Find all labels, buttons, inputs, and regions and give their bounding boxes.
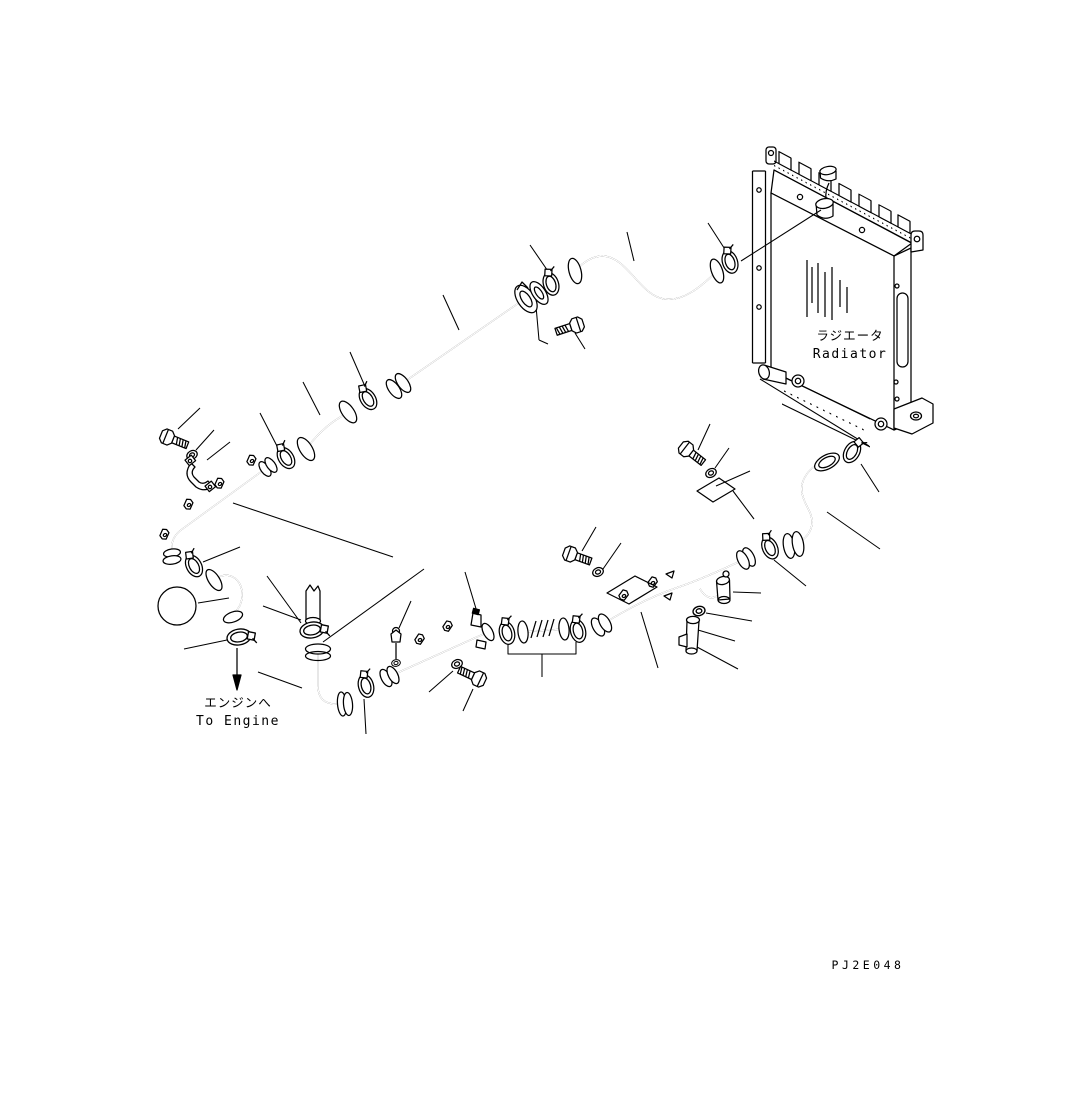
hose-clamp xyxy=(567,613,589,644)
pipe-tab xyxy=(182,498,195,511)
saddle-bracket xyxy=(185,455,216,491)
bypass-pipe-assembly xyxy=(299,585,589,716)
bolt xyxy=(158,428,190,453)
hose-clamp xyxy=(353,381,381,413)
cover-plate xyxy=(697,478,735,502)
hose-clamp xyxy=(496,615,518,646)
pipe-stub xyxy=(306,585,320,620)
hose-clamp xyxy=(299,619,330,641)
hose-clamp xyxy=(757,530,783,562)
pipe-tab xyxy=(441,620,453,633)
hose-clamp xyxy=(180,548,207,580)
parts-diagram-page: 1 ラジエータ Radiator エンジンへ To Engine PJ2E048 xyxy=(0,0,1076,1118)
drain-plug xyxy=(391,628,401,668)
radiator-side-panel xyxy=(894,231,933,434)
to-engine-arrow xyxy=(233,675,241,690)
upper-radiator-hose-assembly xyxy=(539,244,742,339)
upper-water-pipe xyxy=(383,279,551,401)
callout-balloon-1[interactable]: 1 xyxy=(158,587,229,625)
radiator xyxy=(741,147,933,447)
bolt xyxy=(456,663,488,689)
retainer-ring xyxy=(692,605,706,617)
to-engine-label-jp: エンジンへ xyxy=(204,695,272,710)
radiator-label-en: Radiator xyxy=(813,347,888,362)
washer xyxy=(591,566,604,578)
washer xyxy=(704,467,718,480)
radiator-piping-diagram: 1 ラジエータ Radiator エンジンへ To Engine PJ2E048 xyxy=(0,0,1076,1118)
callout-circle[interactable] xyxy=(158,587,196,625)
bolt xyxy=(554,316,586,339)
pipe-tab xyxy=(158,528,171,541)
left-water-pipe-assembly xyxy=(158,428,280,566)
drawing-number: PJ2E048 xyxy=(832,958,905,972)
pipe-tab xyxy=(413,633,425,646)
bolt xyxy=(676,439,708,468)
drain-pipe xyxy=(679,616,700,654)
pipe-tab xyxy=(245,454,258,467)
bolt xyxy=(561,545,593,569)
hose-clamp xyxy=(226,626,257,648)
drain-cock xyxy=(700,571,730,604)
radiator-label-jp: ラジエータ xyxy=(816,328,883,343)
hose-clamp xyxy=(355,668,378,699)
callout-number: 1 xyxy=(167,598,176,616)
lower-water-pipe-assembly xyxy=(561,434,867,654)
mid-elbow-hose xyxy=(271,381,381,472)
to-engine-label-en: To Engine xyxy=(196,714,280,729)
